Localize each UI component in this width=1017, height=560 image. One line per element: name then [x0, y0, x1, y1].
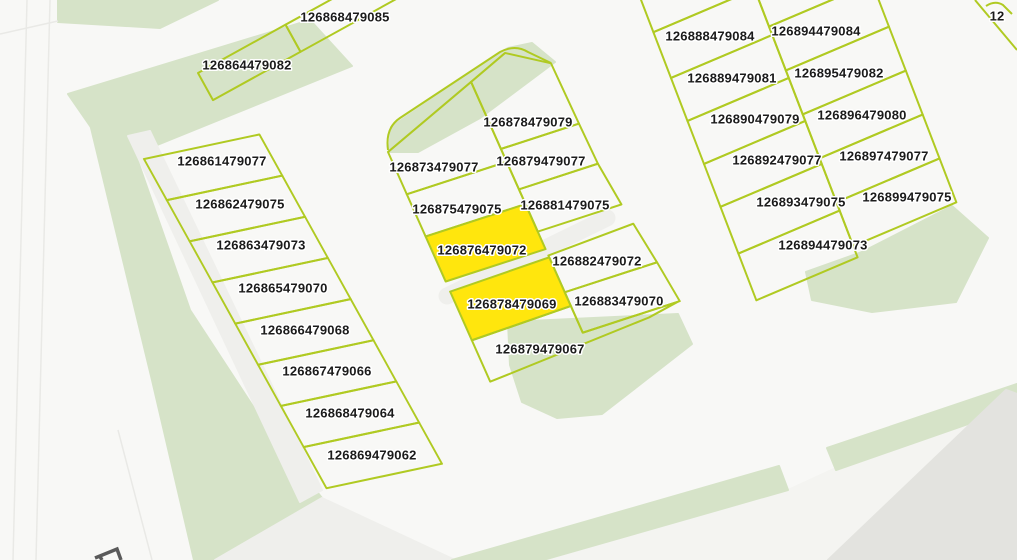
parcel-label: 126878479069 — [467, 297, 556, 312]
parcel-label: 126863479073 — [216, 238, 305, 253]
parcel-label: 126894479073 — [778, 238, 867, 253]
parcel-label: 126878479079 — [483, 115, 572, 130]
parcel-label: 126864479082 — [202, 58, 291, 73]
parcel-label: 126883479070 — [574, 294, 663, 309]
map-canvas[interactable]: 1268684790851268644790821268614790771268… — [0, 0, 1017, 560]
parcel-label: 12 — [990, 9, 1005, 24]
parcel-label: 126881479075 — [520, 198, 609, 213]
parcel-label: 126889479081 — [687, 71, 776, 86]
parcel-label: 126869479062 — [327, 448, 416, 463]
parcel-label: 126861479077 — [177, 154, 266, 169]
parcel-label: 126865479070 — [238, 281, 327, 296]
parcel-label: 126888479084 — [665, 29, 755, 44]
parcel-label: 126894479084 — [771, 24, 861, 39]
parcel-label: 126897479077 — [839, 149, 928, 164]
parcel-label: 126867479066 — [282, 364, 371, 379]
parcel-label: 126892479077 — [732, 153, 821, 168]
parcel-label: 126862479075 — [195, 197, 284, 212]
parcel-label: 126893479075 — [756, 195, 845, 210]
parcel-label: 126899479075 — [862, 190, 951, 205]
parcel-label: 126868479085 — [300, 10, 389, 25]
parcel-label: 126879479067 — [495, 342, 584, 357]
parcel-label: 126875479075 — [412, 202, 501, 217]
parcel-label: 126876479072 — [437, 243, 526, 258]
parcel-label: 126882479072 — [552, 254, 641, 269]
parcel-label: 126868479064 — [305, 406, 395, 421]
parcel-label: 126896479080 — [817, 108, 906, 123]
parcel-label: 126879479077 — [496, 154, 585, 169]
parcel-label: 126890479079 — [710, 112, 799, 127]
parcel-label: 126895479082 — [794, 66, 883, 81]
parcel-label: 126873479077 — [389, 160, 478, 175]
parcel-label: 126866479068 — [260, 323, 349, 338]
